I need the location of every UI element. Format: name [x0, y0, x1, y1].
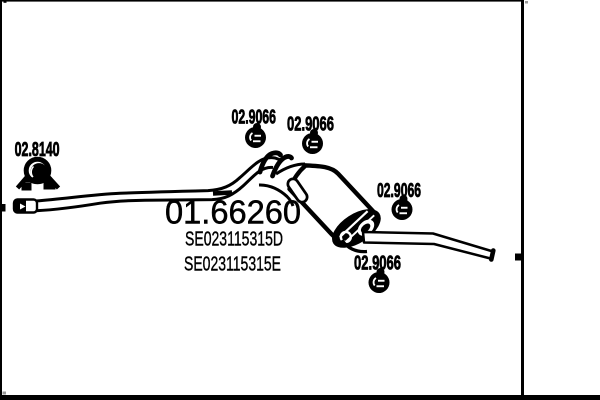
svg-text:02.9066: 02.9066 [377, 180, 421, 202]
svg-text:01.66260: 01.66260 [165, 194, 301, 231]
svg-text:SE023115315D: SE023115315D [185, 228, 283, 251]
svg-text:SE023115315E: SE023115315E [184, 253, 281, 276]
